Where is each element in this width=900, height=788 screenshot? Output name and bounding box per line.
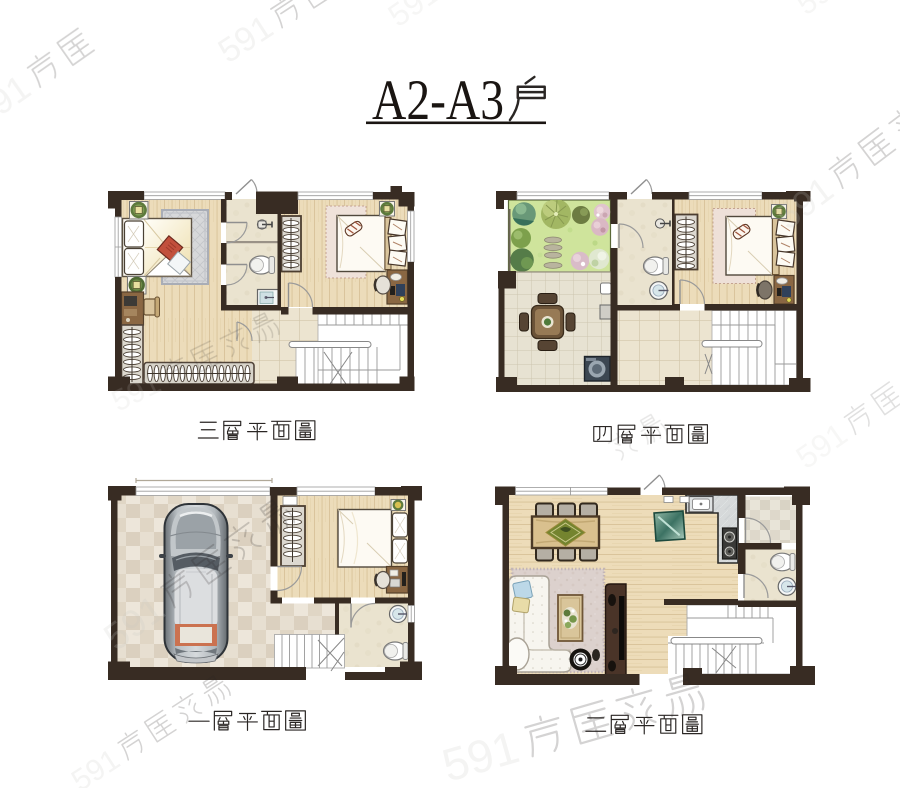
svg-text:591: 591 xyxy=(789,416,853,476)
svg-text:591: 591 xyxy=(381,0,445,34)
svg-text:591: 591 xyxy=(212,8,280,71)
svg-text:591: 591 xyxy=(0,67,38,135)
svg-text:591: 591 xyxy=(66,743,126,788)
svg-text:591: 591 xyxy=(791,0,851,22)
svg-text:591: 591 xyxy=(436,720,524,788)
